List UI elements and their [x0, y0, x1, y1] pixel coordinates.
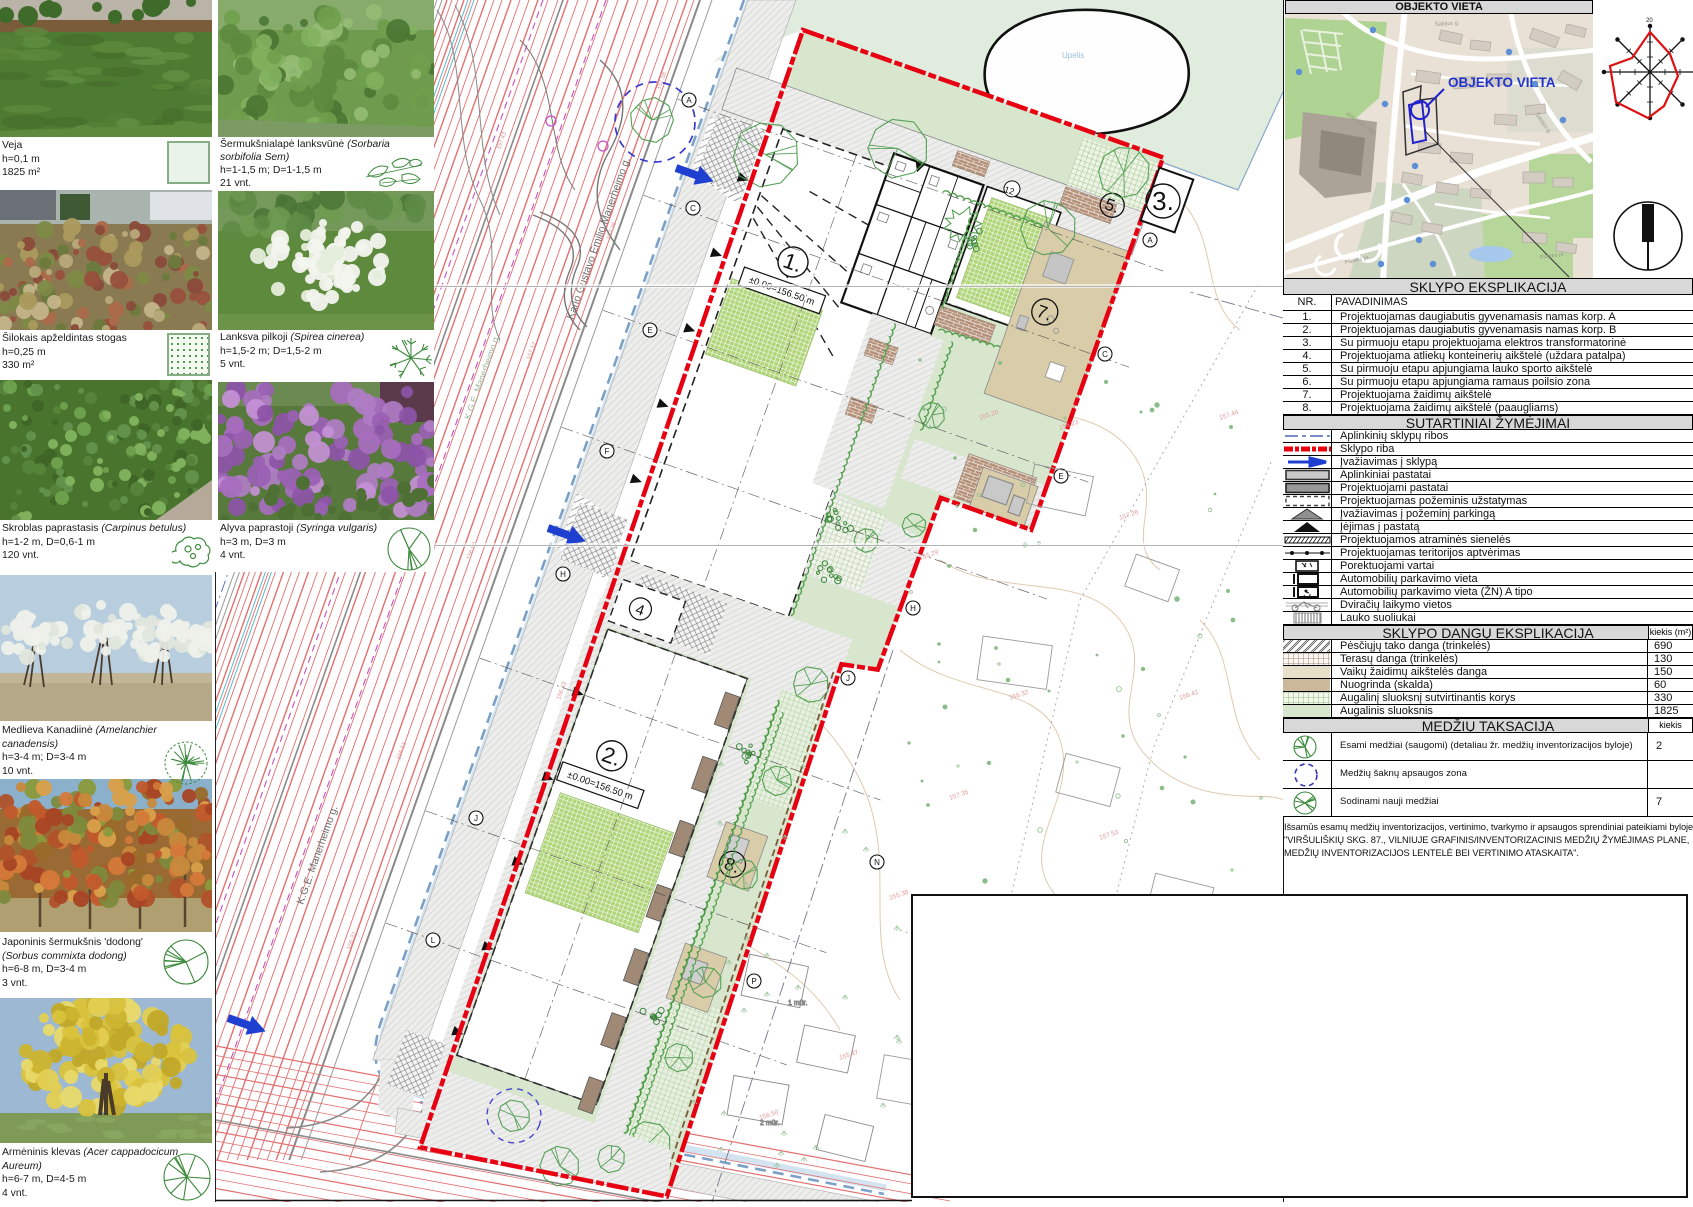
svg-text:1 mūr.: 1 mūr. [788, 1000, 808, 1007]
svg-text:C: C [690, 204, 696, 213]
svg-text:3.: 3. [1152, 186, 1174, 216]
svg-text:N: N [874, 858, 880, 867]
svg-text:F: F [605, 447, 610, 456]
svg-text:20: 20 [1646, 18, 1653, 24]
svg-text:H: H [910, 604, 916, 613]
svg-text:A: A [686, 96, 692, 105]
svg-text:J: J [474, 814, 478, 823]
svg-text:P: P [751, 977, 756, 986]
svg-text:L: L [431, 936, 436, 945]
svg-text:H: H [560, 570, 566, 579]
svg-text:E: E [1058, 472, 1063, 481]
svg-text:Upelis: Upelis [1062, 51, 1084, 60]
svg-text:OBJEKTO VIETA: OBJEKTO VIETA [1448, 75, 1556, 90]
svg-text:E: E [647, 326, 652, 335]
svg-text:J: J [846, 674, 850, 683]
svg-text:C: C [1102, 350, 1108, 359]
svg-text:A: A [1147, 236, 1153, 245]
